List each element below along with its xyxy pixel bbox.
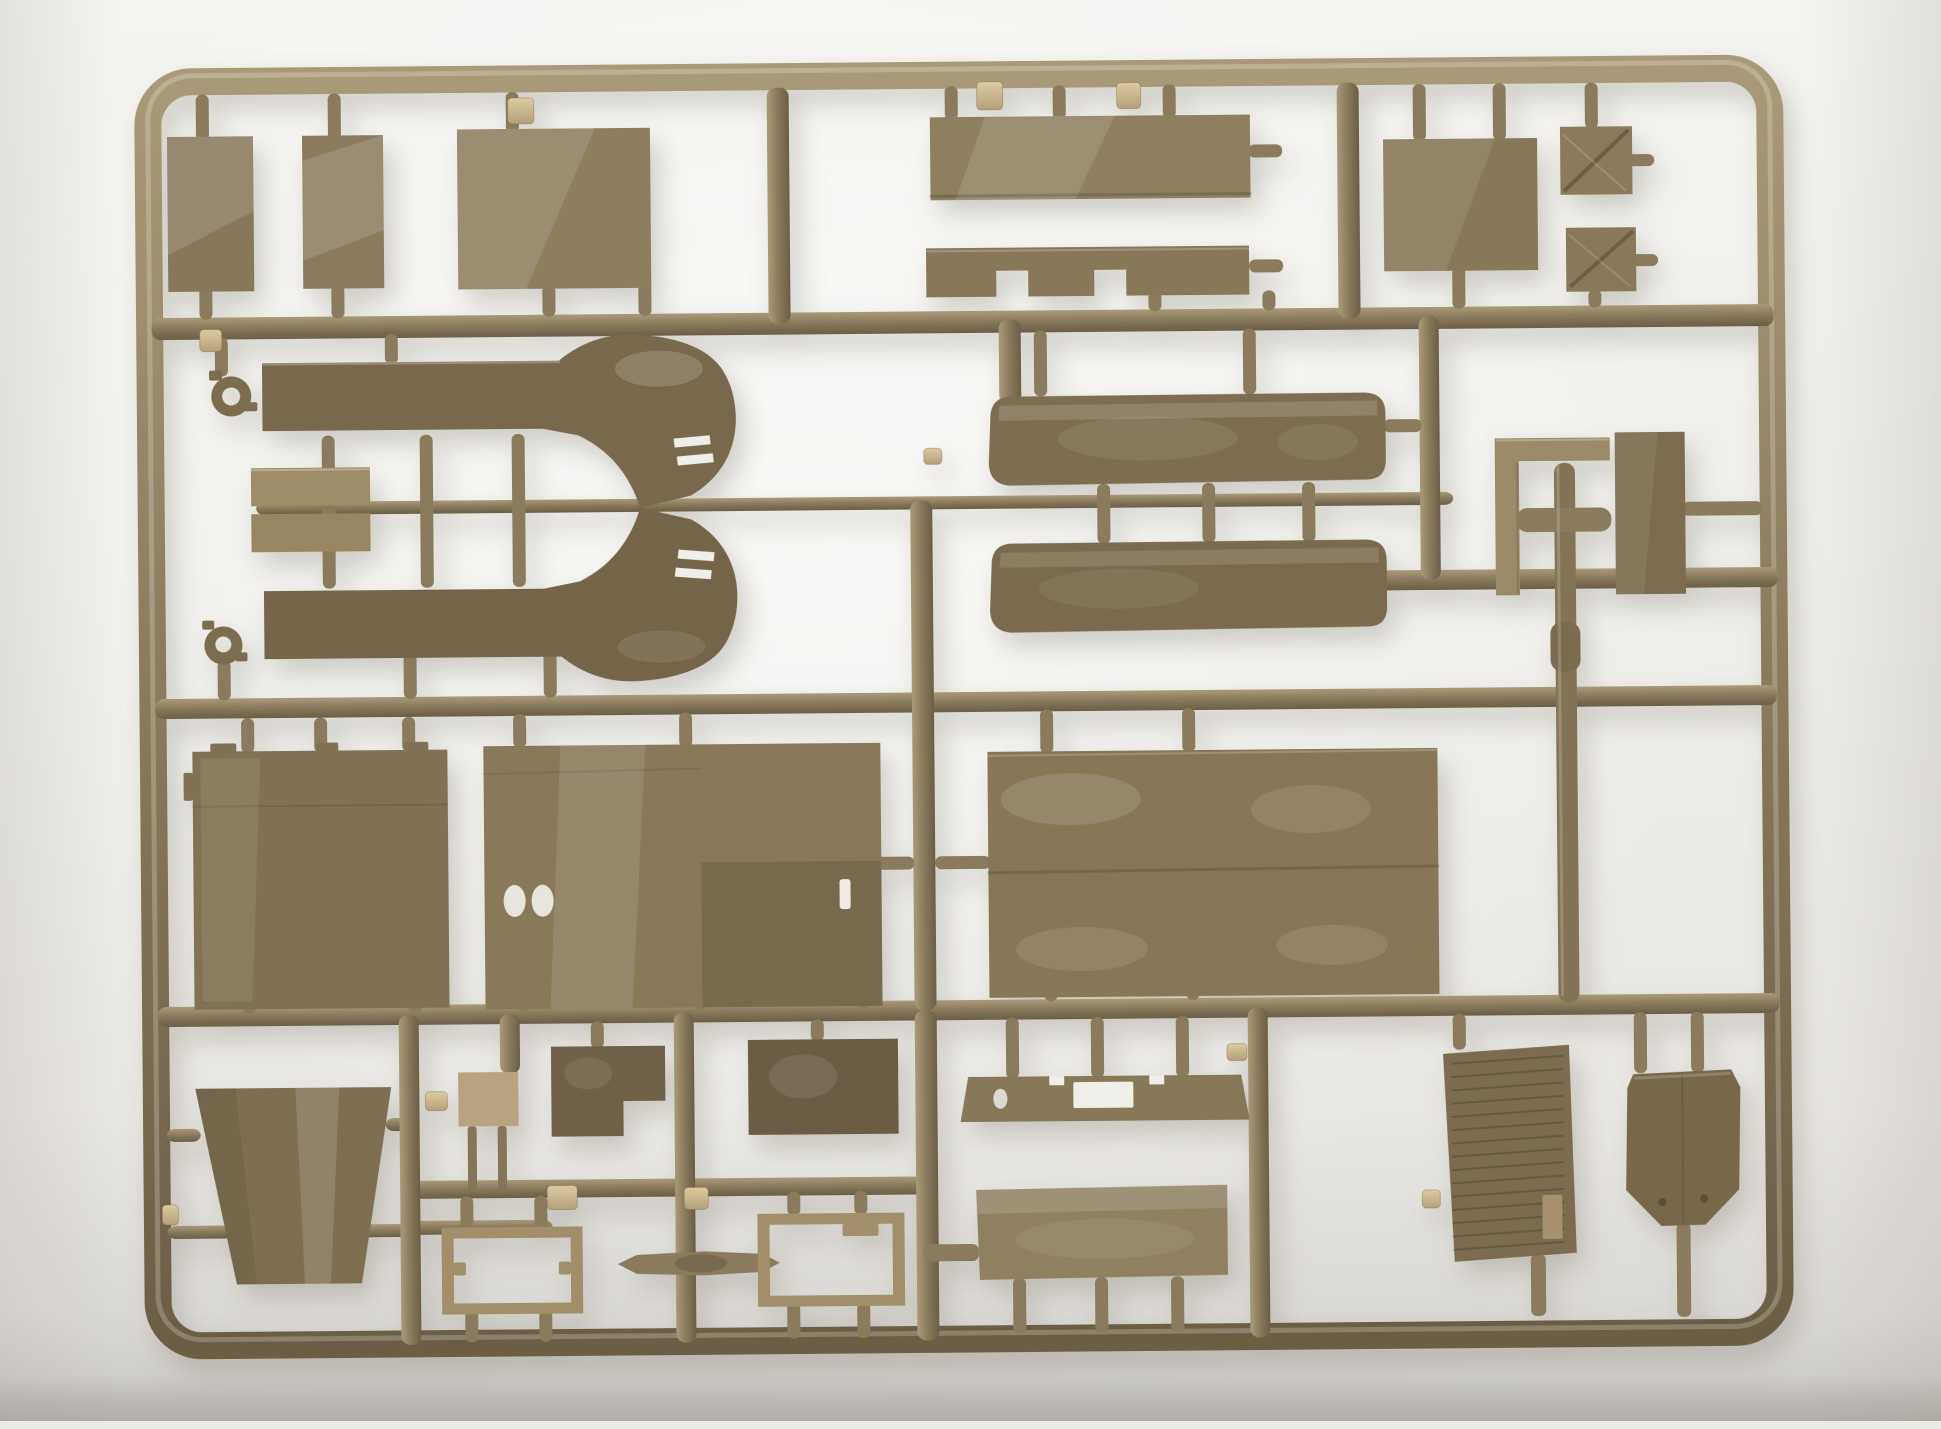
part-open-frame-2 bbox=[757, 1213, 905, 1307]
cab-rear-panel-detail bbox=[210, 743, 236, 752]
open-frame-2-detail bbox=[842, 1224, 878, 1236]
ejector-tab bbox=[162, 1205, 178, 1225]
sprue-gate-stub bbox=[1091, 1017, 1105, 1078]
part-radiator-shell bbox=[1625, 1069, 1741, 1226]
cab-rear-panel-detail bbox=[404, 742, 428, 751]
sprue-gate-stub bbox=[1006, 1018, 1020, 1079]
sprue-gate-stub bbox=[542, 285, 555, 317]
part-notched-panel bbox=[551, 1046, 666, 1137]
rail-right-top bbox=[1337, 83, 1361, 319]
part-plate-small-1 bbox=[167, 136, 254, 292]
ejector-tab bbox=[684, 1187, 708, 1209]
sprue-gate-stub bbox=[512, 434, 526, 587]
fender-step-lower bbox=[251, 513, 370, 552]
part-clip-hook-2 bbox=[202, 620, 247, 664]
part-plate-wide bbox=[457, 128, 651, 290]
channel-bracket-detail bbox=[1497, 439, 1608, 440]
axle-rod-detail bbox=[1516, 507, 1611, 532]
open-frame-1-detail bbox=[559, 1262, 571, 1275]
sprue-gate-stub bbox=[1302, 482, 1316, 542]
sprue-gate-stub bbox=[331, 284, 344, 318]
cab-floor-panel-detail bbox=[701, 861, 882, 1008]
cab-floor-panel-detail bbox=[839, 879, 850, 909]
sprue-gate-stub bbox=[513, 714, 526, 748]
sprue-wrap bbox=[0, 0, 1941, 1429]
radiator-shell-detail bbox=[1682, 1076, 1683, 1222]
sprue-gate-stub bbox=[1053, 85, 1066, 119]
clip-hook-2-detail bbox=[202, 621, 214, 630]
sprue-gate-stub bbox=[241, 718, 254, 753]
rail-center-mid bbox=[910, 500, 936, 1010]
sprue-gate-stub bbox=[638, 284, 651, 316]
sprue-gate-stub bbox=[1691, 1012, 1705, 1073]
fender-step-upper bbox=[251, 467, 370, 506]
part-radiator-grille bbox=[1443, 1045, 1577, 1262]
sprue-gate-stub bbox=[1163, 84, 1176, 118]
sprue-gate-stub bbox=[385, 334, 398, 364]
cab-rear-panel-detail bbox=[184, 773, 193, 801]
notched-panel bbox=[551, 1046, 666, 1137]
part-x-brace-panel-1 bbox=[1560, 126, 1633, 195]
part-dashboard-bar bbox=[960, 1075, 1249, 1123]
sprue-gate-stub bbox=[1383, 419, 1421, 432]
sprue-gate-stub bbox=[1248, 144, 1282, 157]
sprue-gate-stub bbox=[539, 1310, 552, 1342]
part-open-frame-1 bbox=[441, 1226, 583, 1314]
part-hood-trapezoid bbox=[195, 1087, 393, 1285]
part-seat-box-1 bbox=[988, 392, 1386, 485]
rail-row1 bbox=[152, 304, 1774, 340]
part-plain-panel bbox=[748, 1039, 899, 1135]
fork-bracket-detail bbox=[468, 1126, 478, 1190]
part-side-plate bbox=[1615, 432, 1686, 595]
ejector-tab bbox=[977, 82, 1003, 110]
rail-row3 bbox=[155, 685, 1777, 719]
part-cab-rear-panel bbox=[183, 742, 449, 1010]
part-square-plate bbox=[1383, 138, 1538, 271]
sprue-gate-stub bbox=[1013, 1278, 1026, 1334]
part-bed-side-panel bbox=[976, 1185, 1228, 1280]
sprue-gate-stub bbox=[1676, 1223, 1691, 1317]
dashboard-bar-detail bbox=[1049, 1076, 1064, 1085]
sprue-gate-stub bbox=[787, 1192, 800, 1216]
open-frame-1-detail bbox=[454, 1262, 466, 1275]
clip-hook-1-detail bbox=[209, 371, 222, 381]
fork-bracket-detail bbox=[498, 1126, 508, 1190]
sprue-gate-stub bbox=[196, 95, 209, 141]
clip-hook-2-detail bbox=[235, 652, 247, 661]
sprue-gate-stub bbox=[857, 1302, 870, 1338]
part-tie-rod bbox=[618, 1251, 780, 1276]
sprue-gate-stub bbox=[935, 856, 990, 869]
sprue-gate-stub bbox=[1034, 330, 1048, 396]
rail-row5 bbox=[408, 1176, 930, 1199]
sprue-gate-stub bbox=[787, 1303, 800, 1339]
sprue-gate-stub bbox=[1262, 290, 1275, 310]
sprue-gate-stub bbox=[1176, 1016, 1190, 1077]
rail-center-bottom bbox=[915, 1010, 940, 1340]
ejector-tab bbox=[1117, 82, 1141, 108]
rail-center-top bbox=[767, 88, 791, 324]
sprue-gate-stub bbox=[1531, 1254, 1547, 1316]
sprue-gate-stub bbox=[1095, 1277, 1108, 1333]
sprue-gate-stub bbox=[460, 1196, 473, 1229]
photo-scene bbox=[0, 0, 1941, 1421]
channel-bracket-detail bbox=[1517, 463, 1518, 593]
sprue-gate-stub bbox=[199, 288, 212, 320]
rail-fork-stub bbox=[500, 1014, 521, 1074]
sprue-gate-stub bbox=[328, 93, 341, 139]
sprue-gate-stub bbox=[218, 660, 231, 700]
sprue-gate-stub bbox=[924, 1244, 979, 1261]
sprue-gate-stub bbox=[854, 1191, 867, 1215]
part-cab-floor-panel bbox=[483, 743, 882, 1009]
sprue-gate-stub bbox=[534, 1196, 547, 1229]
rail-right-bottom bbox=[1248, 1007, 1271, 1337]
model-kit-sprue-photo bbox=[0, 0, 1941, 1429]
axle-rod-detail bbox=[1550, 622, 1580, 672]
fender-step-upper-detail bbox=[251, 469, 370, 470]
sprue-gate-stub bbox=[1682, 501, 1762, 516]
part-fender-step-lower bbox=[251, 513, 370, 552]
ejector-tab bbox=[547, 1185, 577, 1209]
rail-hood-upper-left bbox=[167, 1129, 201, 1142]
dashboard-bar-detail bbox=[1073, 1082, 1133, 1109]
cab-rear-panel-detail bbox=[316, 743, 338, 752]
part-axle-rod bbox=[1516, 462, 1616, 1003]
sprue-gate-stub bbox=[1634, 1012, 1648, 1073]
sprue-gate-stub bbox=[420, 435, 434, 588]
radiator-grille-detail bbox=[1542, 1195, 1562, 1239]
part-notched-plate bbox=[926, 246, 1249, 298]
sprue-gate-stub bbox=[322, 436, 336, 589]
sprue-gate-stub bbox=[1040, 709, 1053, 753]
sprue-gate-stub bbox=[1249, 259, 1283, 272]
center-rod bbox=[256, 492, 1453, 515]
sprue-gate-stub bbox=[811, 1019, 824, 1041]
sprue-gate-stub bbox=[679, 712, 692, 747]
notched-plate bbox=[926, 246, 1249, 298]
sprue-gate-stub bbox=[403, 653, 416, 699]
table-shadow bbox=[0, 1375, 1941, 1421]
sprue-gate-stub bbox=[1243, 328, 1257, 394]
sprue-gate-stub bbox=[1585, 83, 1598, 129]
rail-right-mid bbox=[1419, 316, 1441, 580]
ejector-tab bbox=[1227, 1044, 1247, 1061]
dashboard-bar-detail bbox=[1149, 1075, 1164, 1084]
part-fender-step-upper bbox=[251, 467, 370, 506]
sprue-gate-stub bbox=[465, 1310, 478, 1342]
part-fork-bracket bbox=[458, 1072, 519, 1191]
sprue-gate-stub bbox=[1452, 267, 1465, 309]
ejector-tab bbox=[200, 330, 222, 352]
sprue-gate-stub bbox=[1097, 484, 1111, 544]
sprue-gate-stub bbox=[1453, 1014, 1466, 1050]
ejector-tab bbox=[1422, 1190, 1440, 1208]
part-seat-box-2 bbox=[990, 539, 1388, 632]
rail-center-upper-mid bbox=[999, 320, 1022, 404]
rail-mid-bottom bbox=[674, 1012, 697, 1342]
sprue-gate-stub bbox=[591, 1021, 604, 1048]
cab-floor-panel-detail bbox=[548, 745, 647, 1009]
radiator-shell-detail bbox=[1658, 1198, 1666, 1206]
part-long-plate bbox=[930, 115, 1251, 201]
ejector-tab bbox=[425, 1092, 447, 1111]
ejector-tab bbox=[508, 98, 534, 124]
ejector-tab bbox=[924, 448, 942, 464]
rail-left-bottom bbox=[399, 1015, 422, 1345]
part-x-brace-panel-2 bbox=[1566, 227, 1637, 292]
sprue-gate-stub bbox=[1413, 84, 1426, 141]
open-frame-2 bbox=[757, 1213, 905, 1307]
sprue-gate-stub bbox=[1171, 1276, 1184, 1332]
part-clip-hook-1 bbox=[209, 370, 257, 416]
part-plate-small-2 bbox=[302, 135, 384, 289]
part-bed-floor-panel bbox=[987, 748, 1439, 998]
sprue-gate-stub bbox=[1182, 708, 1195, 752]
sprue-gate-stub bbox=[1493, 83, 1506, 140]
sprue-gate-stub bbox=[1202, 483, 1216, 543]
sprue-gate-stub bbox=[1588, 289, 1601, 307]
clip-hook-1-detail bbox=[244, 402, 257, 411]
sprue-gate-stub bbox=[945, 86, 958, 120]
cab-rear-panel-detail bbox=[200, 758, 262, 1002]
fork-bracket bbox=[458, 1072, 518, 1127]
radiator-shell-detail bbox=[1700, 1195, 1708, 1203]
